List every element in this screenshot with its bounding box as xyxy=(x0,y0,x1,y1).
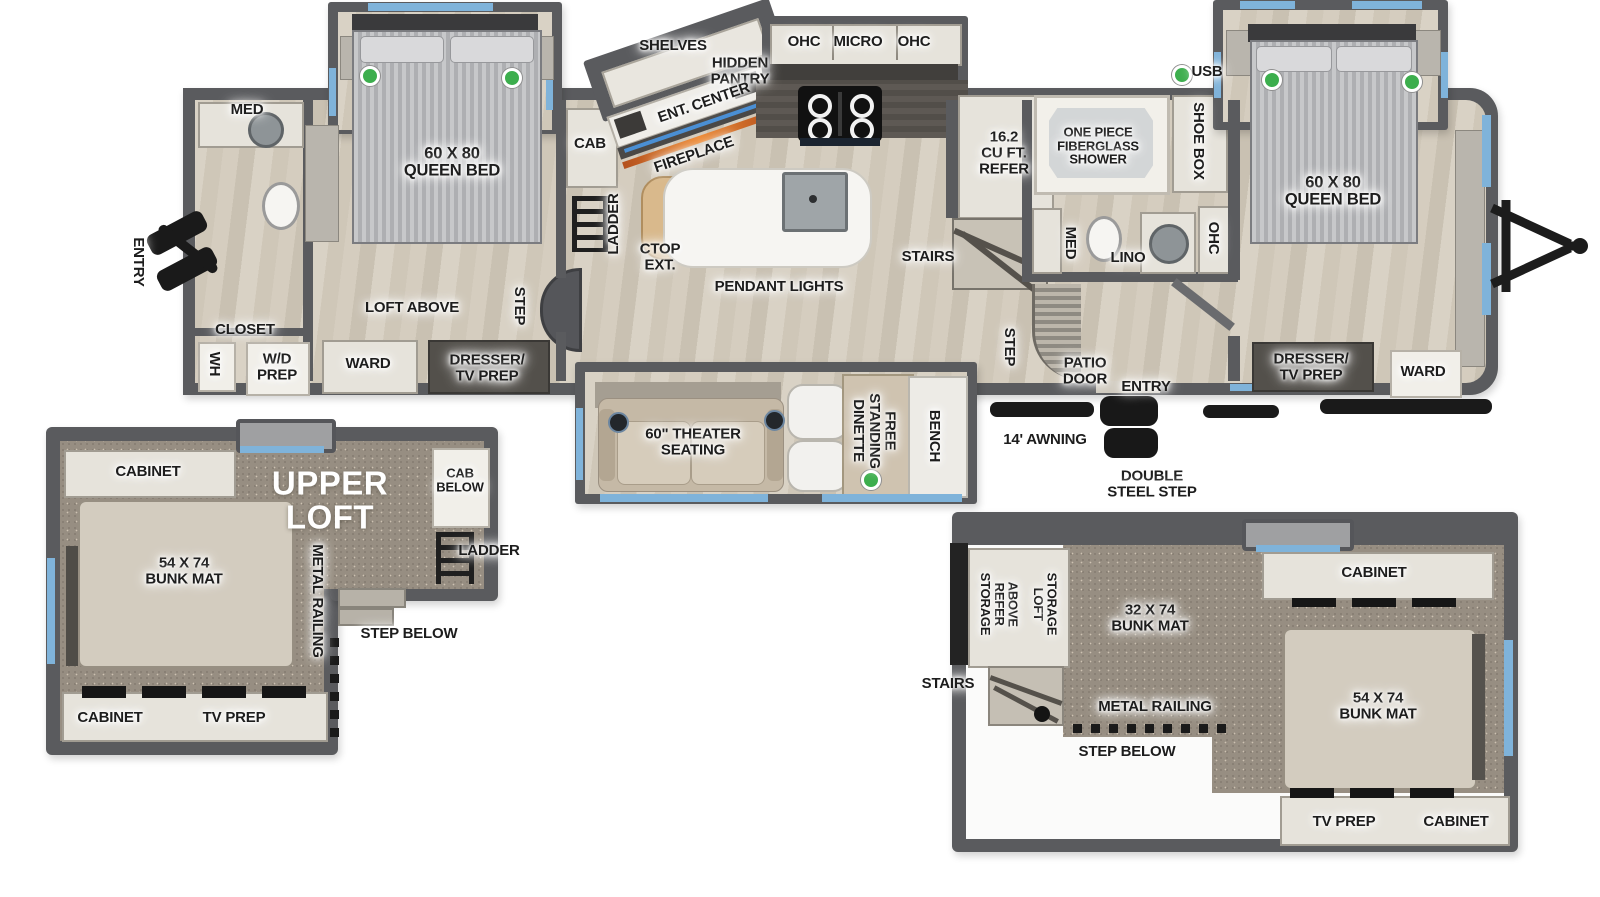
label-loft-above: LOFT ABOVE xyxy=(365,300,459,316)
stove-front xyxy=(800,138,880,146)
label-loft-cabinet-top: CABINET xyxy=(115,464,180,480)
label-ohc-right: OHC xyxy=(898,34,931,50)
label-shoe-box: SHOE BOX xyxy=(1190,102,1206,180)
dinette-chair xyxy=(787,440,849,492)
label-loft-storage: LOFT STORAGE xyxy=(1031,573,1058,636)
awning-rail xyxy=(1203,405,1279,418)
label-dresser-2: DRESSER/ TV PREP xyxy=(449,352,524,384)
cupholder-icon xyxy=(764,410,785,431)
label-ohc-mid: OHC xyxy=(1205,222,1221,255)
refer-below-band xyxy=(950,543,968,665)
label-rear-loft-tv-prep: TV PREP xyxy=(1313,814,1376,830)
label-usb: USB xyxy=(1191,64,1222,80)
label-upper-loft-title: UPPER LOFT xyxy=(272,466,388,533)
label-double-step: DOUBLE STEEL STEP xyxy=(1107,468,1196,500)
label-cab-below: CAB BELOW xyxy=(436,466,483,493)
metal-railing-icon xyxy=(330,638,339,742)
rv-floorplan: MED ENTRY CLOSET WH W/D PREP 60 X 80 QUE… xyxy=(0,0,1600,897)
usb-indicator-dot xyxy=(1172,65,1192,85)
label-step-2: STEP xyxy=(511,287,527,325)
label-bunk-54b: 54 X 74 BUNK MAT xyxy=(1339,690,1416,722)
usb-indicator-dot xyxy=(502,68,522,88)
range-hood xyxy=(770,64,958,80)
mid-bath-wall xyxy=(1022,100,1032,280)
label-theater: 60" THEATER SEATING xyxy=(645,426,740,458)
trailer-hitch-icon xyxy=(1490,200,1590,292)
pillow xyxy=(1336,46,1412,72)
label-micro: MICRO xyxy=(834,34,883,50)
label-patio-door: PATIO DOOR xyxy=(1063,355,1107,387)
label-rear-loft-cabinet-top: CABINET xyxy=(1341,565,1406,581)
window xyxy=(368,3,493,11)
refer-nook-wall xyxy=(946,100,958,218)
window xyxy=(1240,1,1295,9)
loft-steps xyxy=(338,588,406,608)
label-lino: LINO xyxy=(1110,250,1145,266)
label-ward-2: WARD xyxy=(345,356,390,372)
window xyxy=(1256,545,1340,552)
label-bunk-32: 32 X 74 BUNK MAT xyxy=(1111,602,1188,634)
label-above-refer-storage: ABOVE REFER STORAGE xyxy=(979,573,1020,636)
med-cabinet xyxy=(1032,208,1062,274)
dinette-chair xyxy=(787,384,849,440)
label-step-below-b: STEP BELOW xyxy=(1079,744,1176,760)
sink-icon xyxy=(1149,224,1189,264)
tv-prep-slots xyxy=(1290,788,1470,798)
usb-indicator-dot xyxy=(360,66,380,86)
window xyxy=(47,558,55,664)
cupholder-icon xyxy=(608,412,629,433)
awning-rail xyxy=(1320,399,1492,414)
loft-ladder-icon xyxy=(572,196,608,252)
label-metal-railing-b: METAL RAILING xyxy=(1098,699,1212,715)
bedroom2-wall xyxy=(556,100,566,278)
bunk-headboard xyxy=(66,546,78,666)
label-queen-bed-1: 60 X 80 QUEEN BED xyxy=(1285,175,1381,210)
window xyxy=(1504,640,1513,756)
label-queen-bed-2: 60 X 80 QUEEN BED xyxy=(404,146,500,181)
window xyxy=(1441,52,1448,98)
label-ward-1: WARD xyxy=(1400,364,1445,380)
label-wh: WH xyxy=(206,352,222,377)
loft-stairs-icon xyxy=(988,666,1064,726)
usb-indicator-dot xyxy=(1262,70,1282,90)
label-step-below-a: STEP BELOW xyxy=(361,626,458,642)
bunk-headboard xyxy=(1472,634,1485,780)
label-step-patio: STEP xyxy=(1001,328,1017,366)
label-entry-rear: ENTRY xyxy=(130,237,146,286)
window xyxy=(1352,1,1422,9)
window xyxy=(329,68,336,116)
pillow xyxy=(1256,46,1332,72)
nightstand xyxy=(1415,30,1441,76)
awning-rail xyxy=(990,402,1094,417)
label-shower: ONE PIECE FIBERGLASS SHOWER xyxy=(1057,126,1139,167)
label-med-rear: MED xyxy=(231,102,264,118)
tv-prep-slots xyxy=(1292,598,1462,607)
front-bedroom-wall xyxy=(1228,100,1240,280)
window xyxy=(576,408,583,480)
label-entry-main: ENTRY xyxy=(1121,379,1170,395)
window xyxy=(240,446,324,453)
label-bunk-54a: 54 X 74 BUNK MAT xyxy=(145,555,222,587)
label-ladder-main: LADDER xyxy=(606,193,622,254)
double-steel-step-icon xyxy=(1100,396,1158,426)
bedroom2-wall xyxy=(556,332,566,381)
label-closet: CLOSET xyxy=(215,322,275,338)
label-metal-railing-a: METAL RAILING xyxy=(309,544,325,658)
label-loft-tv-prep: TV PREP xyxy=(203,710,266,726)
label-dresser-1: DRESSER/ TV PREP xyxy=(1273,351,1348,383)
label-dinette: FREE STANDING DINETTE xyxy=(850,393,897,469)
label-pendant-lights: PENDANT LIGHTS xyxy=(715,279,844,295)
tv-panel xyxy=(1455,130,1485,367)
label-loft-cabinet-bottom: CABINET xyxy=(77,710,142,726)
window xyxy=(1482,115,1491,187)
label-wd-prep: W/D PREP xyxy=(257,351,297,383)
double-steel-step-icon xyxy=(1104,428,1158,458)
tv-prep-slots xyxy=(82,686,306,698)
wardrobe-panel xyxy=(305,125,339,242)
toilet-icon xyxy=(262,182,300,230)
metal-railing-icon xyxy=(1073,724,1231,733)
label-med-mid: MED xyxy=(1062,227,1078,260)
label-shelves: SHELVES xyxy=(639,38,707,54)
label-awning: 14' AWNING xyxy=(1003,432,1087,448)
label-stairs-main: STAIRS xyxy=(902,249,955,265)
label-cab: CAB xyxy=(574,136,606,152)
front-bedroom-wall xyxy=(1228,336,1240,381)
label-loft-ladder: LADDER xyxy=(458,543,519,559)
label-rear-loft-cabinet-bottom: CABINET xyxy=(1423,814,1488,830)
label-ctop-ext: CTOP EXT. xyxy=(640,241,681,273)
stair-newel-post xyxy=(1034,706,1050,722)
label-ohc-left: OHC xyxy=(788,34,821,50)
pillow xyxy=(450,36,534,63)
usb-indicator-dot xyxy=(861,470,881,490)
usb-indicator-dot xyxy=(1402,72,1422,92)
label-rear-loft-stairs: STAIRS xyxy=(922,676,975,692)
window xyxy=(600,494,768,502)
label-bench: BENCH xyxy=(926,410,942,462)
stove-icon xyxy=(798,86,882,142)
island-sink-icon xyxy=(782,172,848,232)
label-refer: 16.2 CU FT. REFER xyxy=(979,129,1029,176)
pillow xyxy=(360,36,444,63)
window xyxy=(822,494,962,502)
loft-steps xyxy=(338,608,394,626)
